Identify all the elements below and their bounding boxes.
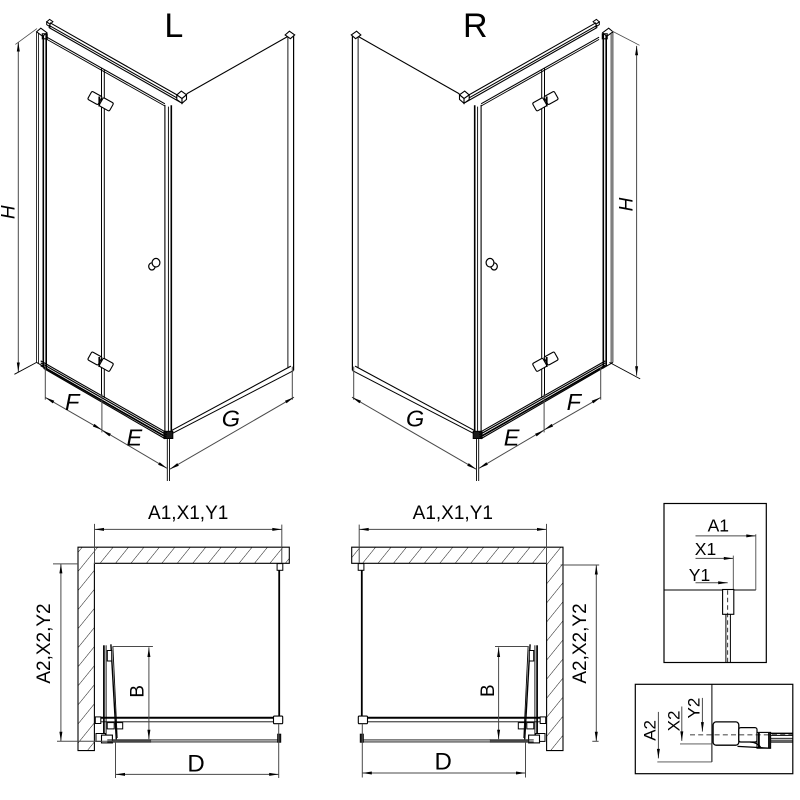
svg-text:H: H — [0, 205, 19, 219]
svg-text:X1: X1 — [695, 539, 716, 559]
svg-text:E: E — [127, 425, 143, 451]
svg-text:A2,X2,Y2: A2,X2,Y2 — [34, 603, 55, 683]
svg-text:D: D — [187, 751, 204, 778]
svg-text:Y1: Y1 — [689, 565, 710, 585]
svg-text:F: F — [567, 389, 583, 415]
svg-text:G: G — [222, 405, 240, 431]
svg-text:A2,X2,Y2: A2,X2,Y2 — [570, 603, 591, 683]
svg-text:A2: A2 — [641, 720, 660, 741]
svg-text:E: E — [504, 425, 520, 451]
svg-text:B: B — [478, 684, 499, 697]
svg-text:H: H — [617, 197, 638, 211]
svg-text:F: F — [65, 389, 81, 415]
svg-text:R: R — [463, 7, 488, 45]
svg-text:Y2: Y2 — [684, 698, 703, 719]
svg-text:A1,X1,Y1: A1,X1,Y1 — [148, 503, 228, 524]
svg-text:A1,X1,Y1: A1,X1,Y1 — [413, 503, 493, 524]
svg-text:G: G — [406, 405, 424, 431]
svg-text:B: B — [127, 685, 148, 698]
svg-text:D: D — [435, 748, 452, 775]
svg-text:L: L — [164, 7, 183, 45]
svg-text:X2: X2 — [665, 711, 684, 732]
svg-text:A1: A1 — [708, 515, 729, 535]
